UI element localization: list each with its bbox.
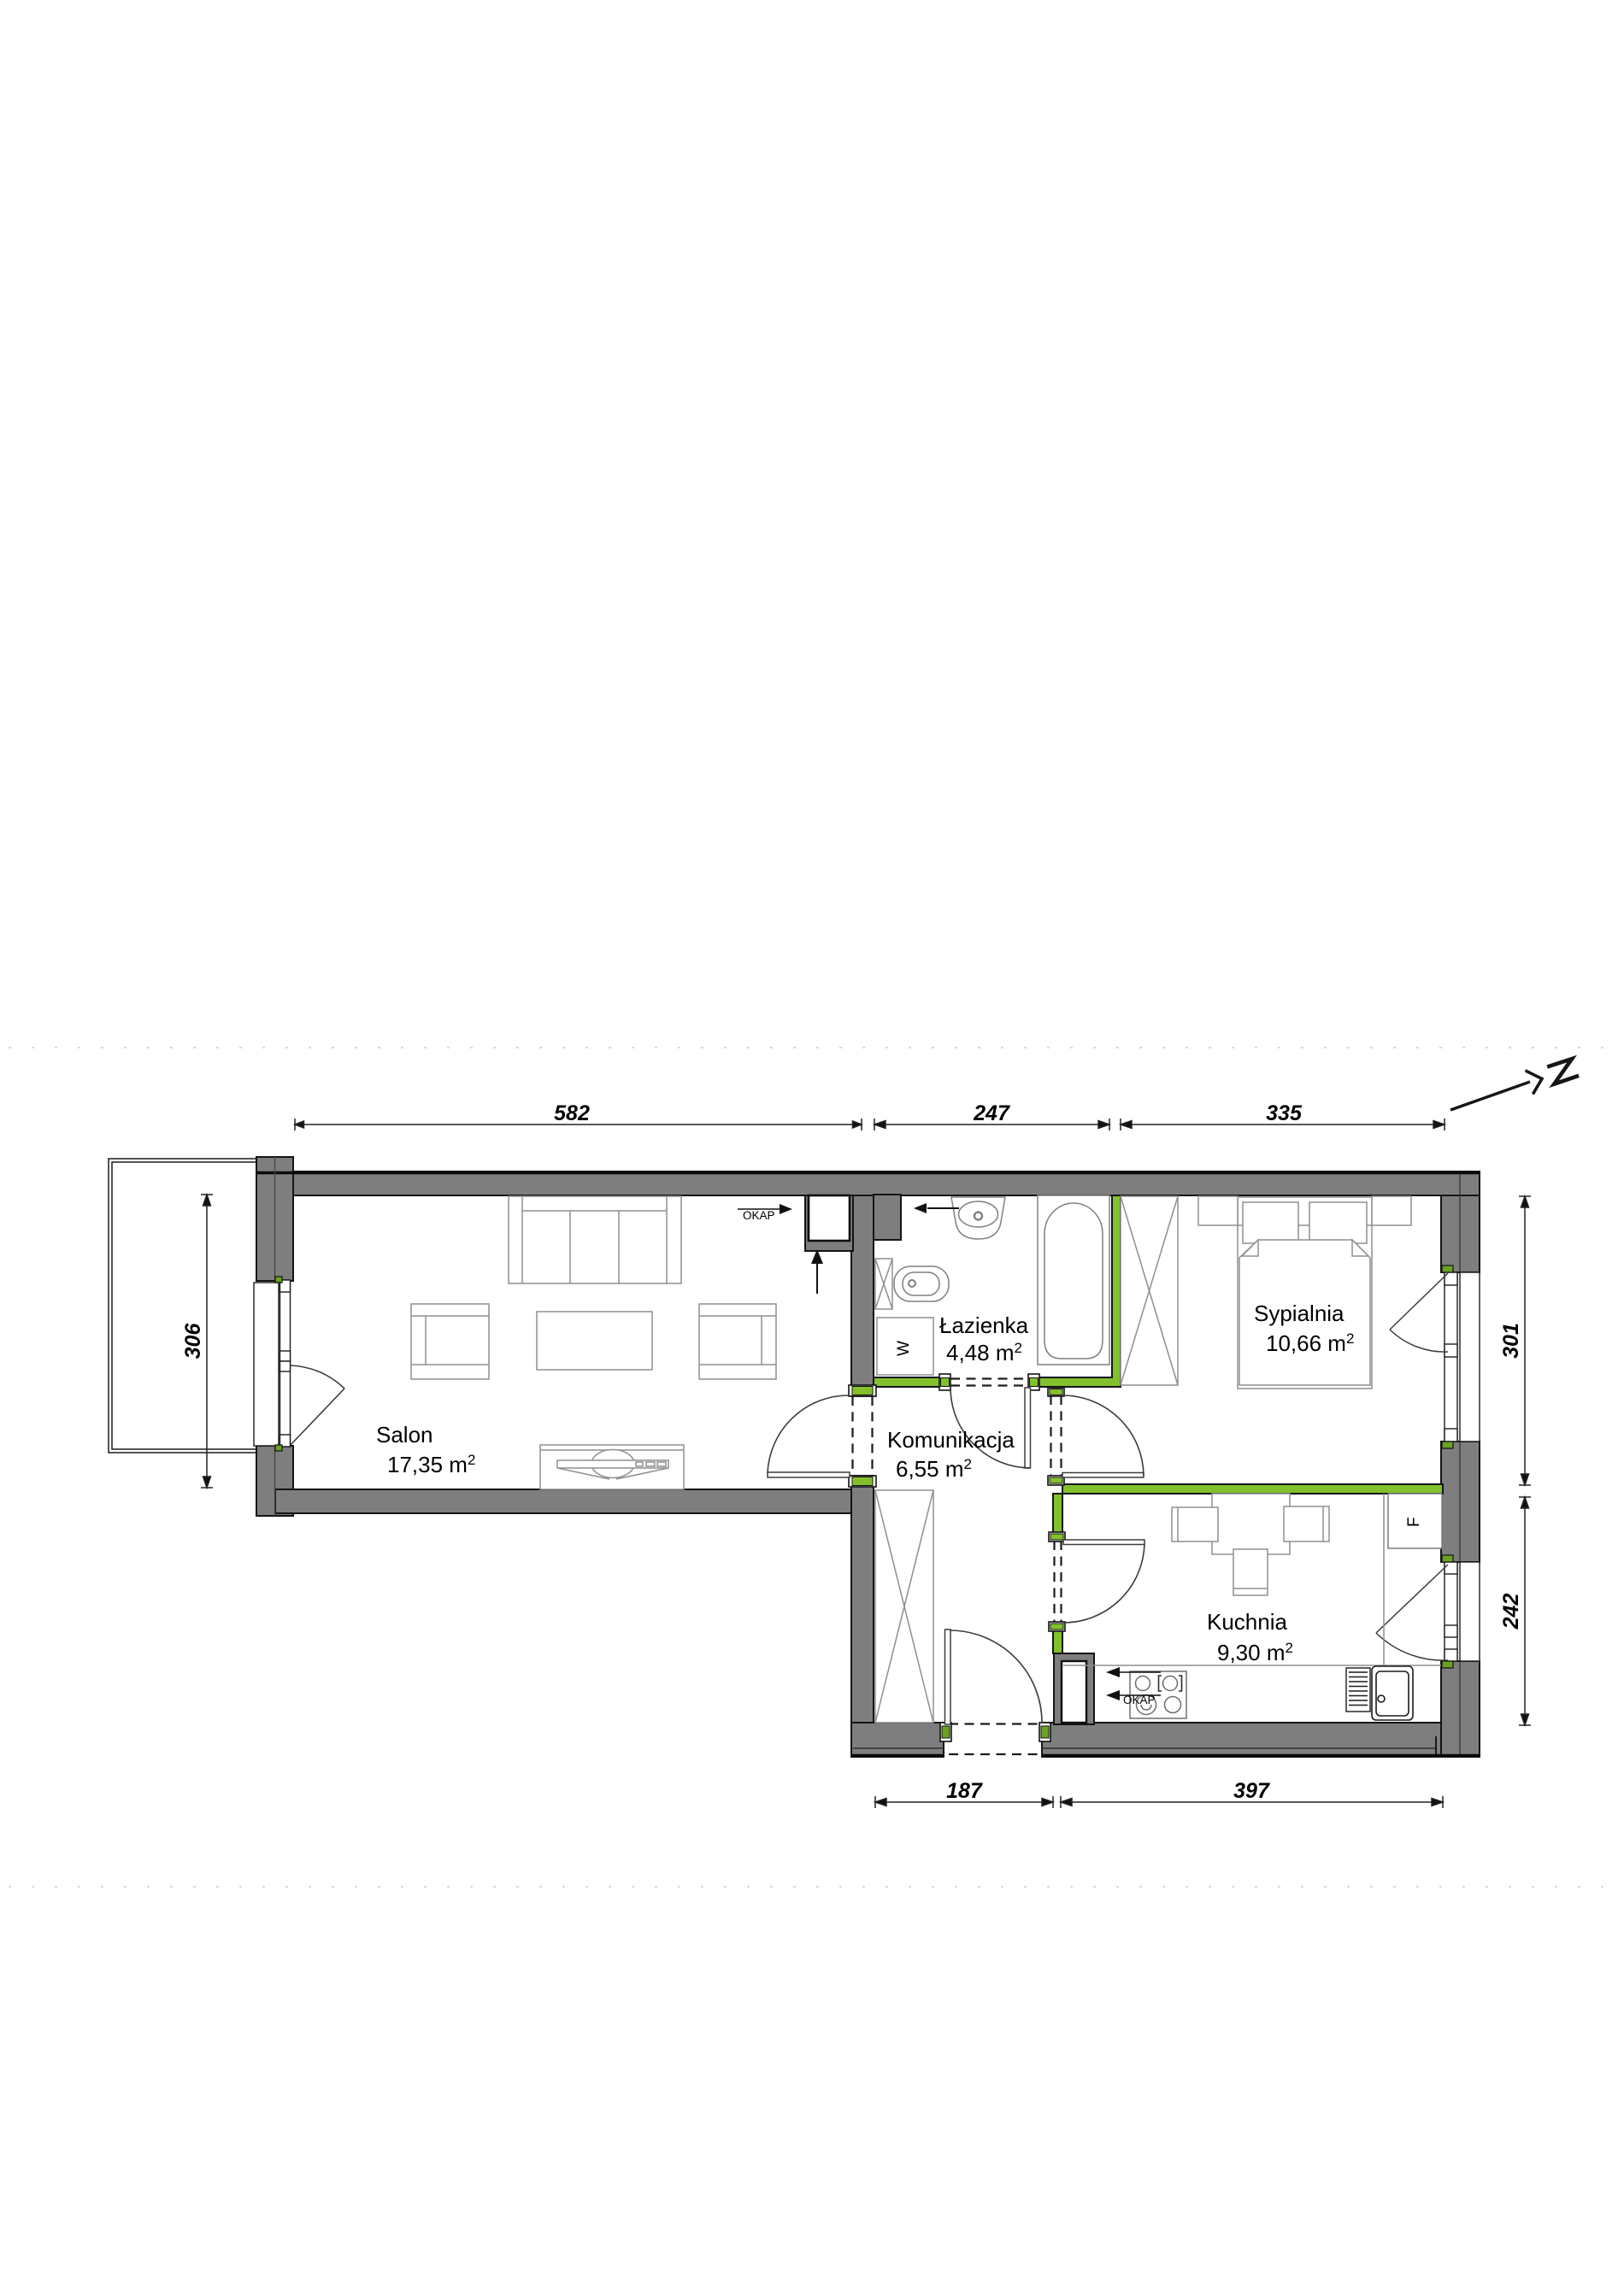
svg-text:F: F [1405,1517,1423,1527]
svg-text:397: 397 [1233,1779,1270,1803]
svg-text:10,66 m2: 10,66 m2 [1266,1330,1354,1356]
svg-text:Łazienka: Łazienka [939,1312,1029,1338]
svg-text:Kuchnia: Kuchnia [1207,1609,1287,1635]
svg-text:Sypialnia: Sypialnia [1254,1301,1345,1326]
svg-text:W: W [895,1341,913,1356]
svg-text:Komunikacja: Komunikacja [887,1427,1015,1453]
svg-text:242: 242 [1499,1594,1523,1630]
svg-text:6,55 m2: 6,55 m2 [896,1456,972,1482]
svg-text:4,48 m2: 4,48 m2 [946,1340,1022,1365]
svg-text:17,35 m2: 17,35 m2 [387,1452,475,1477]
svg-text:247: 247 [973,1101,1010,1125]
svg-text:9,30 m2: 9,30 m2 [1217,1640,1293,1665]
svg-text:301: 301 [1499,1323,1523,1359]
svg-text:582: 582 [554,1101,590,1125]
svg-text:335: 335 [1266,1101,1303,1125]
svg-text:OKAP: OKAP [743,1209,775,1222]
svg-text:306: 306 [181,1323,205,1359]
svg-text:187: 187 [946,1779,983,1803]
svg-text:Salon: Salon [376,1422,433,1447]
